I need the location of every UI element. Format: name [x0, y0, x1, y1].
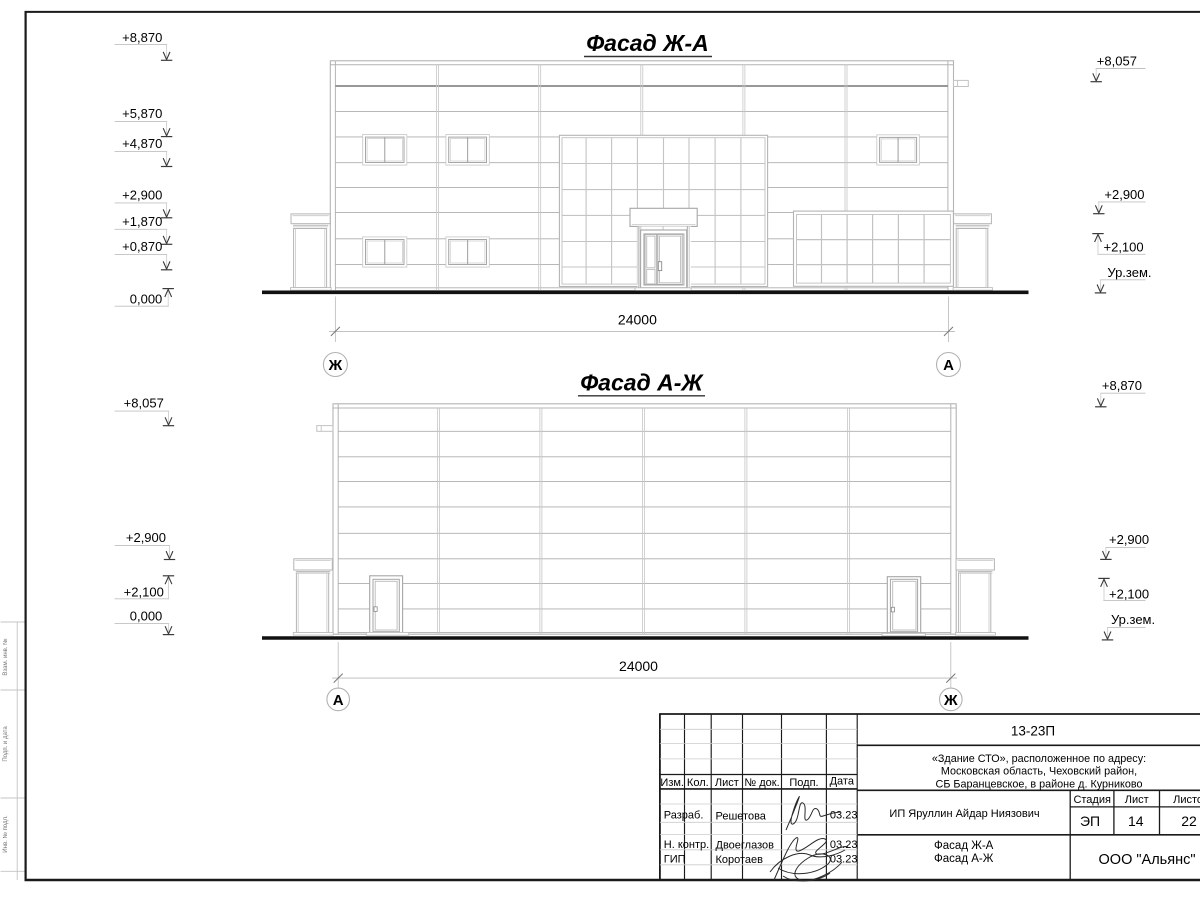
svg-text:Подп. и дата: Подп. и дата — [3, 726, 9, 762]
svg-text:+8,870: +8,870 — [1102, 378, 1142, 393]
svg-text:+0,870: +0,870 — [122, 239, 162, 254]
svg-text:№ док.: № док. — [744, 777, 779, 789]
svg-text:Инв. № подл.: Инв. № подл. — [2, 815, 9, 853]
svg-text:+8,057: +8,057 — [124, 395, 164, 410]
svg-text:+2,100: +2,100 — [1109, 586, 1149, 601]
svg-text:+5,870: +5,870 — [122, 106, 162, 121]
svg-text:13-23П: 13-23П — [1011, 724, 1055, 739]
svg-text:Лист: Лист — [715, 777, 739, 789]
svg-text:Московская область, Чеховский: Московская область, Чеховский район, — [941, 766, 1137, 778]
svg-text:Разраб.: Разраб. — [664, 810, 704, 822]
svg-text:+2,100: +2,100 — [1104, 239, 1144, 254]
svg-text:Коротаев: Коротаев — [716, 854, 764, 866]
svg-text:Решетова: Решетова — [716, 811, 767, 823]
svg-text:0,000: 0,000 — [130, 292, 163, 307]
svg-text:А: А — [943, 357, 954, 374]
svg-text:ООО "Альянс": ООО "Альянс" — [1099, 852, 1196, 868]
svg-text:ИП Яруллин Айдар Ниязович: ИП Яруллин Айдар Ниязович — [889, 808, 1039, 820]
svg-text:03.23: 03.23 — [830, 854, 858, 866]
svg-text:«Здание СТО», расположенное по: «Здание СТО», расположенное по адресу: — [932, 753, 1146, 765]
svg-text:0,000: 0,000 — [130, 608, 163, 623]
svg-text:Дата: Дата — [830, 776, 855, 788]
svg-text:ГИП: ГИП — [664, 854, 686, 866]
svg-text:СБ Баранцевское, в районе д. К: СБ Баранцевское, в районе д. Курниково — [936, 778, 1143, 790]
svg-text:+8,870: +8,870 — [122, 30, 162, 45]
svg-text:03.23: 03.23 — [830, 839, 858, 851]
svg-text:Ж: Ж — [943, 692, 958, 709]
svg-text:Ж: Ж — [328, 357, 343, 374]
svg-text:Н. контр.: Н. контр. — [664, 839, 709, 851]
svg-text:+2,900: +2,900 — [1109, 532, 1149, 547]
svg-text:+2,900: +2,900 — [1104, 187, 1144, 202]
svg-text:Лист: Лист — [1125, 794, 1149, 806]
svg-text:+4,870: +4,870 — [122, 136, 162, 151]
svg-text:+2,100: +2,100 — [124, 584, 164, 599]
svg-text:24000: 24000 — [618, 311, 657, 327]
svg-text:Фасад Ж-А: Фасад Ж-А — [934, 840, 994, 852]
svg-text:Ур.зем.: Ур.зем. — [1107, 265, 1151, 280]
svg-text:Ур.зем.: Ур.зем. — [1111, 612, 1155, 627]
svg-text:А: А — [333, 692, 344, 709]
svg-text:Кол.: Кол. — [687, 777, 709, 789]
svg-text:Двоеглазов: Двоеглазов — [716, 840, 775, 852]
svg-text:Подп.: Подп. — [789, 777, 818, 789]
svg-text:24000: 24000 — [619, 658, 658, 674]
svg-text:03.23: 03.23 — [830, 810, 858, 822]
svg-text:Фасад Ж-А: Фасад Ж-А — [586, 30, 709, 56]
svg-text:+1,870: +1,870 — [122, 214, 162, 229]
svg-text:ЭП: ЭП — [1080, 813, 1100, 829]
svg-text:22: 22 — [1181, 813, 1197, 829]
svg-text:14: 14 — [1128, 813, 1144, 829]
svg-text:Взам. инв. №: Взам. инв. № — [2, 638, 9, 675]
svg-text:Стадия: Стадия — [1073, 794, 1111, 806]
svg-text:Листов: Листов — [1173, 794, 1200, 806]
svg-text:Фасад А-Ж: Фасад А-Ж — [580, 370, 704, 396]
svg-text:Фасад А-Ж: Фасад А-Ж — [934, 853, 994, 865]
svg-text:Изм.: Изм. — [660, 777, 684, 789]
svg-text:+2,900: +2,900 — [122, 188, 162, 203]
svg-text:+8,057: +8,057 — [1097, 54, 1137, 69]
svg-text:+2,900: +2,900 — [126, 530, 166, 545]
